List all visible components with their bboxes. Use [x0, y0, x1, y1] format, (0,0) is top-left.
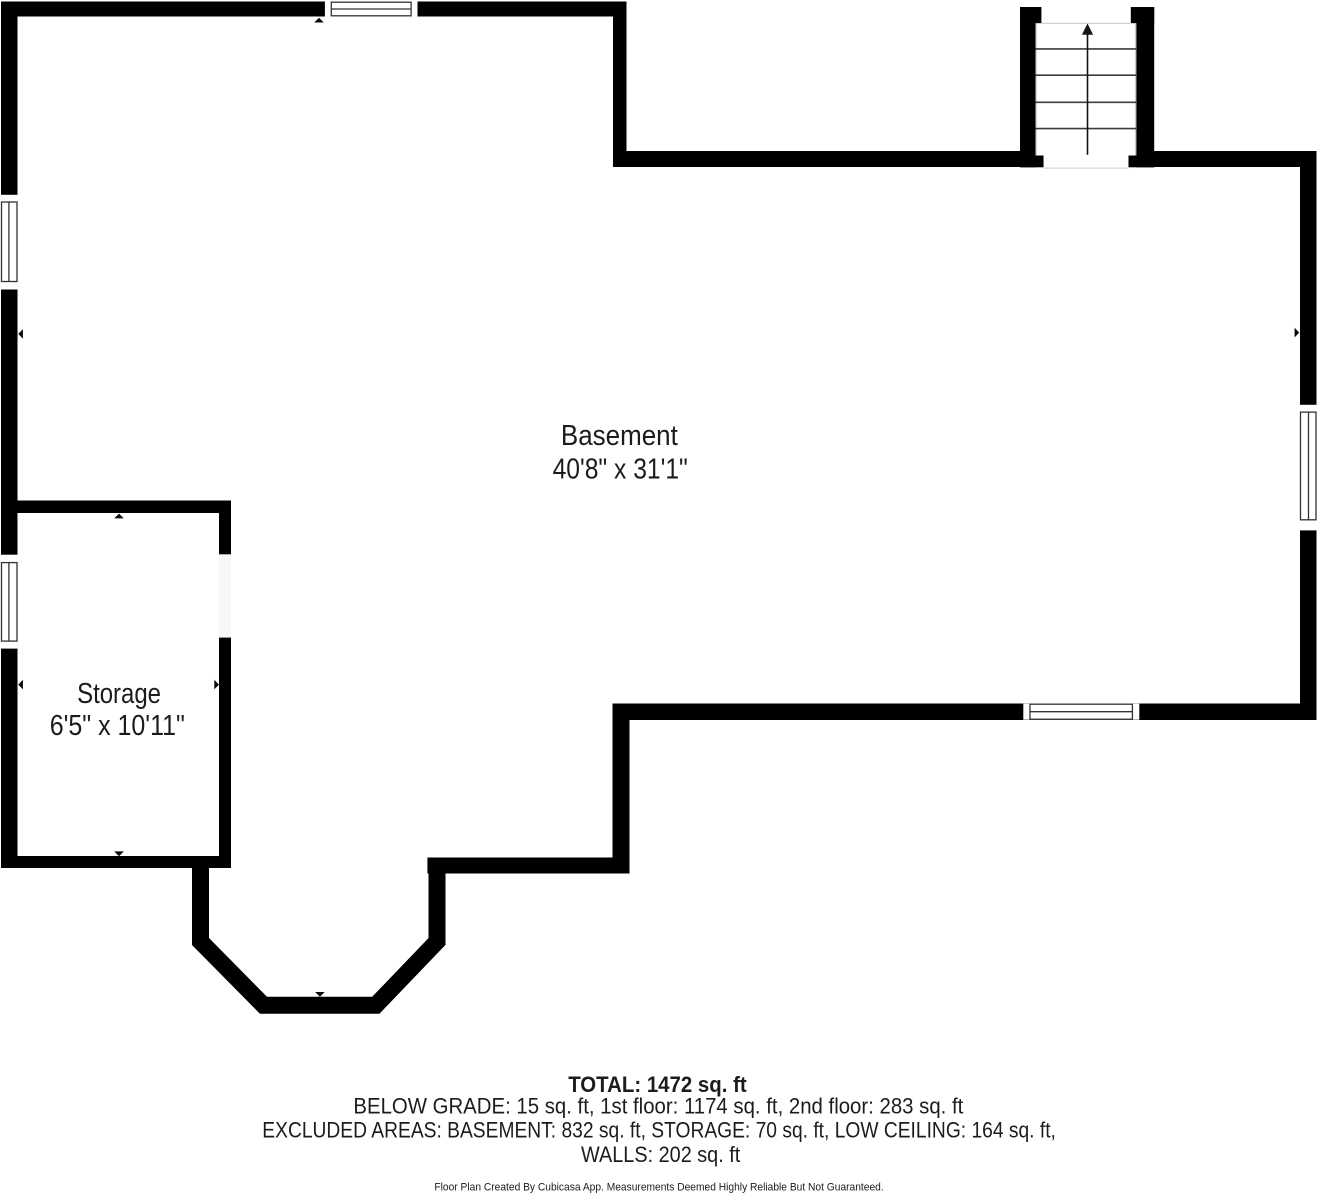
- svg-text:Floor Plan Created By Cubicasa: Floor Plan Created By Cubicasa App. Meas…: [434, 1182, 883, 1194]
- svg-text:6'5" x 10'11": 6'5" x 10'11": [50, 710, 185, 742]
- svg-text:Storage: Storage: [77, 678, 161, 710]
- svg-text:EXCLUDED AREAS: BASEMENT: 832: EXCLUDED AREAS: BASEMENT: 832 sq. ft, ST…: [262, 1117, 1056, 1142]
- svg-text:Basement: Basement: [561, 420, 678, 452]
- svg-text:WALLS: 202 sq. ft: WALLS: 202 sq. ft: [581, 1142, 740, 1167]
- svg-text:BELOW GRADE: 15 sq. ft, 1st fl: BELOW GRADE: 15 sq. ft, 1st floor: 1174 …: [353, 1093, 963, 1118]
- svg-text:40'8" x 31'1": 40'8" x 31'1": [553, 454, 688, 486]
